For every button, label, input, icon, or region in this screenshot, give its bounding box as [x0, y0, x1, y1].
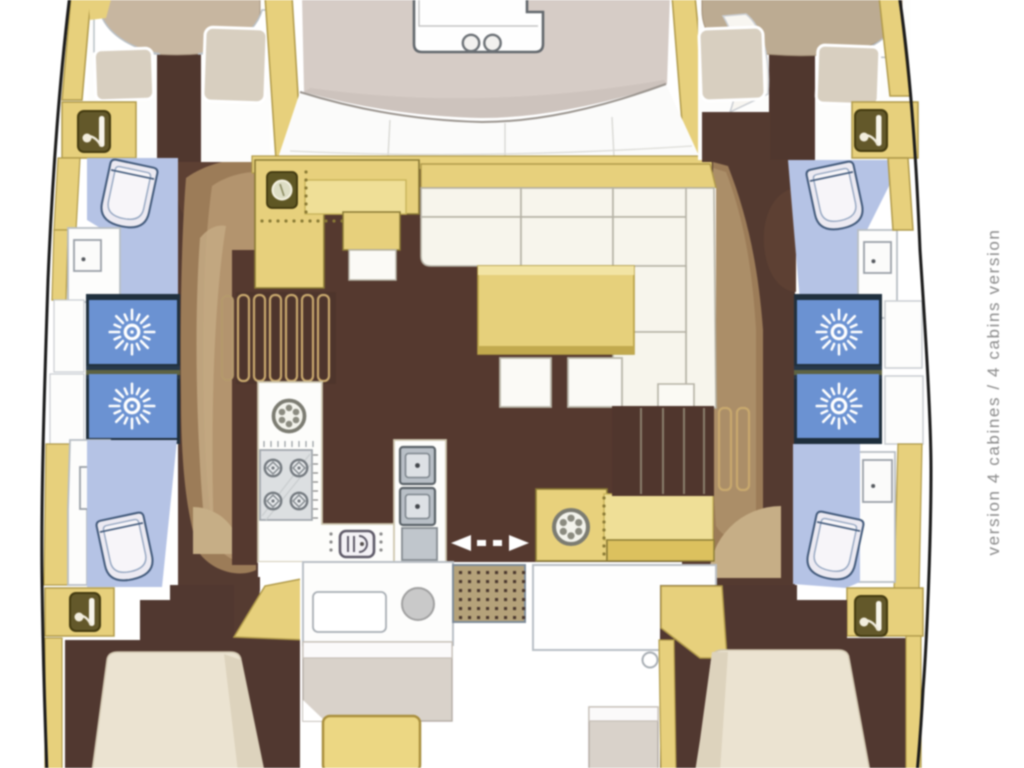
svg-text:version 4 cabines / 4 cabins v: version 4 cabines / 4 cabins version	[984, 229, 1003, 556]
